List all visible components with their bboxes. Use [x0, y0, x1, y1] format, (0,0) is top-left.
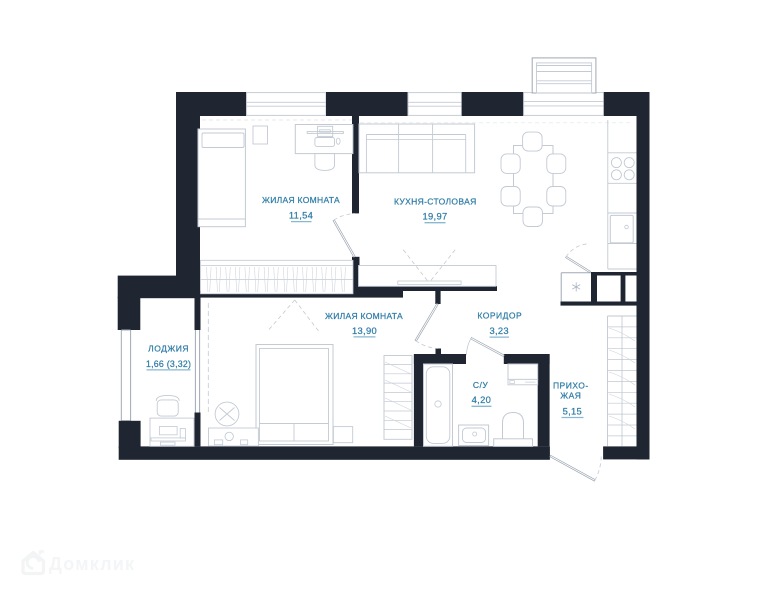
svg-text:11,54: 11,54	[289, 209, 313, 220]
svg-text:С/У: С/У	[473, 380, 489, 390]
svg-text:КУХНЯ-СТОЛОВАЯ: КУХНЯ-СТОЛОВАЯ	[394, 197, 477, 207]
svg-text:19,97: 19,97	[423, 211, 448, 222]
svg-text:ЖАЯ: ЖАЯ	[560, 391, 581, 401]
svg-text:4,20: 4,20	[472, 394, 491, 405]
svg-text:3,23: 3,23	[489, 325, 508, 336]
svg-text:ПРИХО-: ПРИХО-	[553, 381, 589, 391]
svg-text:КОРИДОР: КОРИДОР	[477, 310, 522, 320]
svg-text:13,90: 13,90	[352, 325, 377, 336]
svg-text:1,66 (3,32): 1,66 (3,32)	[146, 359, 191, 369]
svg-text:Домклик: Домклик	[49, 554, 135, 574]
svg-text:ЛОДЖИЯ: ЛОДЖИЯ	[148, 343, 189, 353]
svg-text:ЖИЛАЯ КОМНАТА: ЖИЛАЯ КОМНАТА	[325, 311, 403, 321]
svg-text:ЖИЛАЯ КОМНАТА: ЖИЛАЯ КОМНАТА	[262, 195, 340, 205]
svg-text:5,15: 5,15	[563, 405, 582, 416]
